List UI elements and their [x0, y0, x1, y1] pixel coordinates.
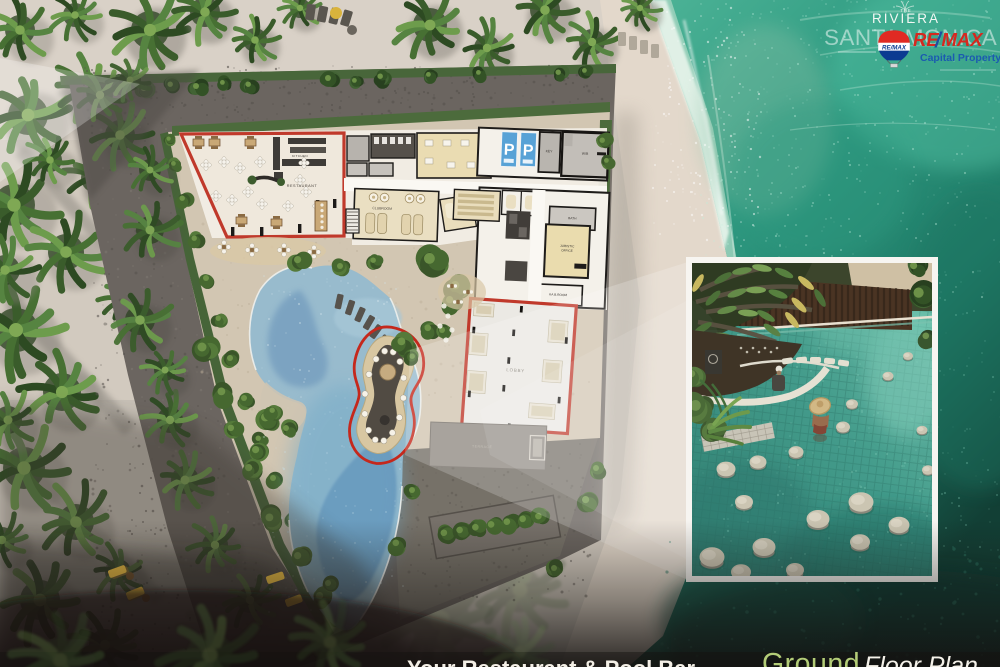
svg-text:RE/MAX: RE/MAX: [882, 44, 907, 51]
svg-text:Capital Property: Capital Property: [920, 52, 1000, 64]
svg-text:Ground: Ground: [762, 648, 860, 667]
svg-text:KITCHEN: KITCHEN: [292, 154, 308, 158]
svg-text:RIVIERA: RIVIERA: [872, 11, 940, 26]
svg-text:OFFICE: OFFICE: [561, 248, 573, 252]
svg-text:KEY: KEY: [546, 149, 554, 153]
svg-text:RESTAURANT: RESTAURANT: [287, 184, 318, 188]
svg-text:P: P: [503, 142, 515, 159]
svg-text:CLUBROOM: CLUBROOM: [372, 206, 392, 211]
svg-text:MAX: MAX: [942, 29, 985, 50]
svg-text:Floor Plan: Floor Plan: [864, 652, 978, 667]
svg-text:KA B.ROOM: KA B.ROOM: [549, 292, 567, 297]
svg-text:BATH: BATH: [568, 216, 577, 220]
svg-text:Your Restaurant & Pool Bar: Your Restaurant & Pool Bar: [407, 656, 696, 667]
svg-text:P: P: [522, 142, 534, 159]
svg-text:W/B: W/B: [582, 152, 589, 156]
